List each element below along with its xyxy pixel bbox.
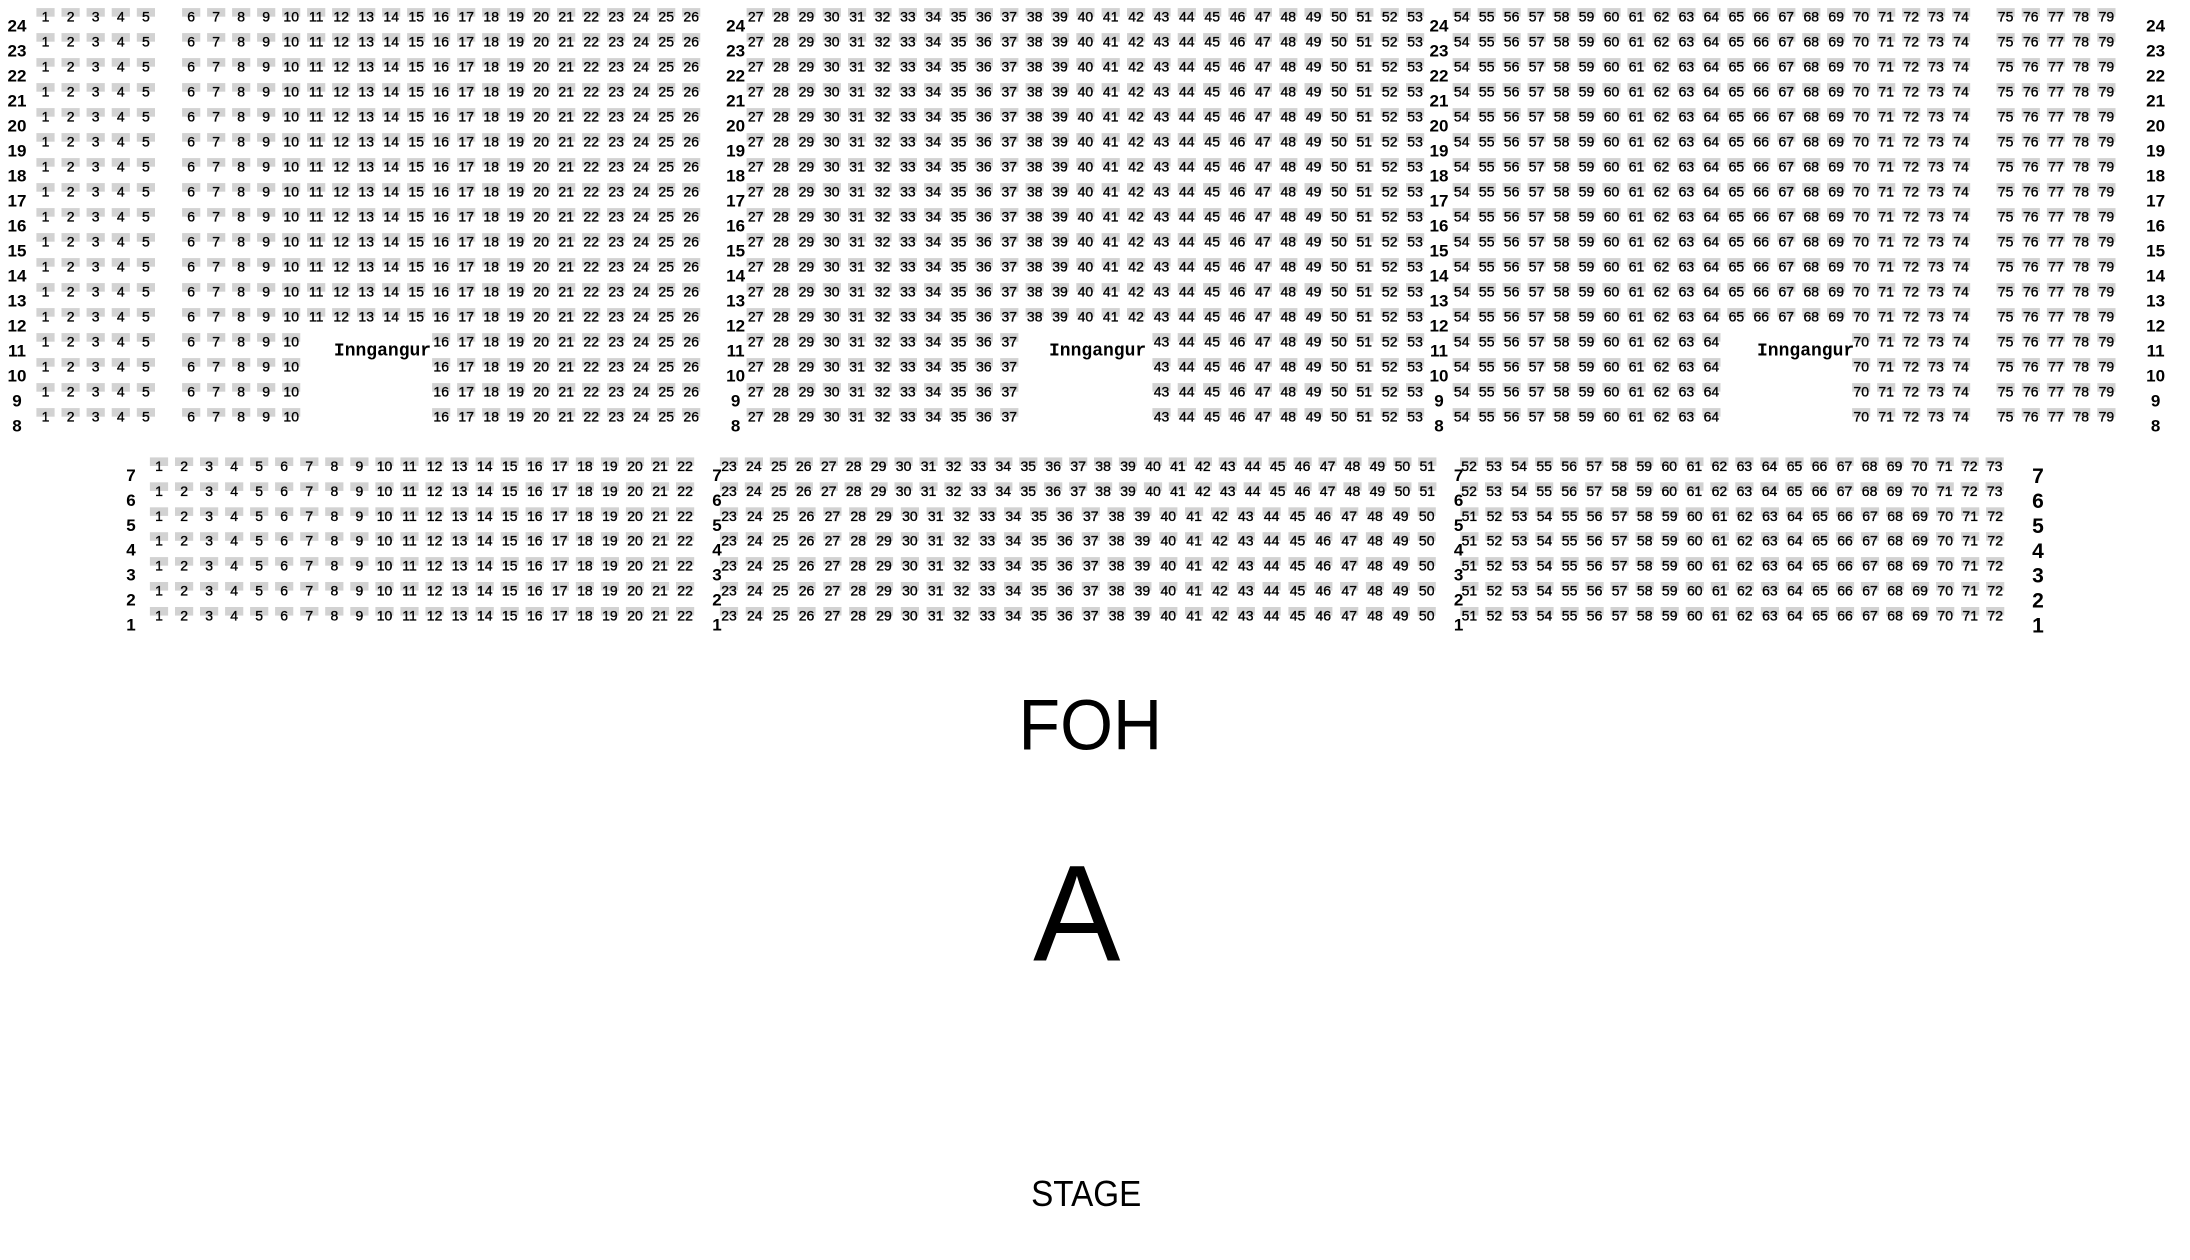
- svg-text:61: 61: [1629, 259, 1645, 275]
- svg-text:58: 58: [1554, 334, 1570, 350]
- svg-text:9: 9: [262, 9, 270, 25]
- svg-text:52: 52: [1382, 9, 1398, 25]
- svg-text:17: 17: [2146, 192, 2165, 211]
- svg-text:40: 40: [1078, 259, 1094, 275]
- svg-text:37: 37: [1002, 9, 1018, 25]
- svg-text:5: 5: [142, 234, 150, 250]
- svg-text:76: 76: [2023, 9, 2039, 25]
- svg-text:79: 79: [2099, 59, 2115, 75]
- svg-text:35: 35: [951, 84, 967, 100]
- svg-text:59: 59: [1662, 533, 1678, 549]
- svg-text:16: 16: [433, 84, 449, 100]
- svg-text:9: 9: [356, 583, 364, 599]
- svg-text:67: 67: [1862, 558, 1878, 574]
- svg-text:3: 3: [92, 234, 100, 250]
- svg-text:13: 13: [452, 583, 468, 599]
- svg-text:1: 1: [42, 259, 50, 275]
- svg-text:39: 39: [1052, 159, 1068, 175]
- svg-text:16: 16: [433, 334, 449, 350]
- svg-text:15: 15: [408, 59, 424, 75]
- svg-text:45: 45: [1204, 159, 1220, 175]
- svg-text:50: 50: [1331, 334, 1347, 350]
- svg-text:35: 35: [1031, 583, 1047, 599]
- svg-text:19: 19: [508, 309, 524, 325]
- svg-text:64: 64: [1787, 508, 1803, 524]
- svg-text:36: 36: [1045, 458, 1061, 474]
- svg-text:62: 62: [1712, 483, 1728, 499]
- svg-text:73: 73: [1928, 409, 1944, 425]
- svg-text:12: 12: [333, 84, 349, 100]
- svg-text:27: 27: [748, 259, 764, 275]
- svg-text:19: 19: [602, 558, 618, 574]
- svg-text:39: 39: [1135, 608, 1151, 624]
- svg-text:45: 45: [1204, 59, 1220, 75]
- svg-text:2: 2: [67, 159, 75, 175]
- svg-text:71: 71: [1878, 59, 1894, 75]
- svg-text:71: 71: [1937, 458, 1953, 474]
- svg-text:47: 47: [1255, 234, 1271, 250]
- svg-text:22: 22: [583, 284, 599, 300]
- svg-text:59: 59: [1579, 9, 1595, 25]
- svg-text:73: 73: [1928, 184, 1944, 200]
- svg-text:55: 55: [1479, 359, 1495, 375]
- svg-text:31: 31: [921, 483, 937, 499]
- svg-text:20: 20: [533, 409, 549, 425]
- svg-text:75: 75: [1998, 309, 2014, 325]
- svg-text:30: 30: [896, 458, 912, 474]
- svg-text:65: 65: [1812, 533, 1828, 549]
- svg-text:33: 33: [900, 284, 916, 300]
- svg-text:67: 67: [1779, 84, 1795, 100]
- svg-text:64: 64: [1704, 359, 1720, 375]
- svg-text:25: 25: [658, 134, 674, 150]
- svg-text:44: 44: [1179, 109, 1195, 125]
- svg-text:19: 19: [602, 608, 618, 624]
- svg-text:64: 64: [1704, 109, 1720, 125]
- svg-text:17: 17: [458, 309, 474, 325]
- svg-text:34: 34: [925, 159, 941, 175]
- svg-text:25: 25: [658, 309, 674, 325]
- svg-text:73: 73: [1928, 159, 1944, 175]
- svg-text:24: 24: [633, 234, 649, 250]
- svg-text:47: 47: [1255, 409, 1271, 425]
- svg-text:77: 77: [2048, 359, 2064, 375]
- svg-text:26: 26: [683, 9, 699, 25]
- svg-text:24: 24: [747, 608, 763, 624]
- svg-text:55: 55: [1479, 134, 1495, 150]
- svg-text:18: 18: [483, 9, 499, 25]
- svg-text:18: 18: [483, 359, 499, 375]
- svg-text:48: 48: [1281, 359, 1297, 375]
- svg-text:47: 47: [1255, 259, 1271, 275]
- svg-text:6: 6: [187, 309, 195, 325]
- svg-text:24: 24: [633, 334, 649, 350]
- svg-text:13: 13: [358, 134, 374, 150]
- svg-text:19: 19: [602, 508, 618, 524]
- svg-text:72: 72: [1903, 34, 1919, 50]
- svg-text:54: 54: [1454, 159, 1470, 175]
- svg-text:18: 18: [483, 309, 499, 325]
- svg-text:64: 64: [1704, 334, 1720, 350]
- svg-text:46: 46: [1230, 259, 1246, 275]
- svg-text:48: 48: [1367, 533, 1383, 549]
- svg-text:8: 8: [237, 84, 245, 100]
- svg-text:42: 42: [1128, 34, 1144, 50]
- svg-text:39: 39: [1052, 59, 1068, 75]
- svg-text:68: 68: [1804, 309, 1820, 325]
- svg-text:35: 35: [951, 34, 967, 50]
- svg-text:13: 13: [358, 209, 374, 225]
- svg-text:65: 65: [1787, 483, 1803, 499]
- svg-text:17: 17: [458, 259, 474, 275]
- svg-text:56: 56: [1504, 284, 1520, 300]
- svg-text:18: 18: [1430, 167, 1449, 186]
- svg-text:27: 27: [825, 608, 841, 624]
- svg-text:71: 71: [1962, 533, 1978, 549]
- svg-text:23: 23: [608, 284, 624, 300]
- svg-text:39: 39: [1120, 483, 1136, 499]
- svg-text:59: 59: [1579, 234, 1595, 250]
- svg-text:31: 31: [849, 384, 865, 400]
- svg-text:79: 79: [2099, 284, 2115, 300]
- svg-text:68: 68: [1862, 483, 1878, 499]
- svg-text:7: 7: [212, 284, 220, 300]
- svg-text:48: 48: [1367, 583, 1383, 599]
- svg-text:72: 72: [1987, 558, 2003, 574]
- svg-text:45: 45: [1204, 134, 1220, 150]
- svg-text:2: 2: [2032, 590, 2044, 613]
- svg-text:25: 25: [658, 159, 674, 175]
- svg-text:1: 1: [42, 9, 50, 25]
- svg-text:6: 6: [2032, 490, 2044, 513]
- svg-text:70: 70: [1853, 234, 1869, 250]
- svg-text:36: 36: [976, 184, 992, 200]
- svg-text:52: 52: [1461, 483, 1477, 499]
- svg-text:69: 69: [1828, 184, 1844, 200]
- svg-text:66: 66: [1837, 608, 1853, 624]
- svg-text:25: 25: [773, 558, 789, 574]
- svg-text:30: 30: [902, 583, 918, 599]
- svg-text:20: 20: [627, 583, 643, 599]
- svg-text:59: 59: [1579, 209, 1595, 225]
- svg-text:74: 74: [1953, 309, 1969, 325]
- svg-text:14: 14: [2146, 267, 2165, 286]
- svg-text:30: 30: [824, 259, 840, 275]
- svg-text:52: 52: [1382, 234, 1398, 250]
- svg-text:51: 51: [1420, 458, 1436, 474]
- svg-text:1: 1: [42, 334, 50, 350]
- svg-text:19: 19: [508, 59, 524, 75]
- svg-text:16: 16: [527, 533, 543, 549]
- svg-text:55: 55: [1562, 508, 1578, 524]
- svg-text:58: 58: [1554, 409, 1570, 425]
- svg-text:50: 50: [1419, 558, 1435, 574]
- svg-text:2: 2: [67, 34, 75, 50]
- svg-text:26: 26: [683, 284, 699, 300]
- svg-text:34: 34: [996, 458, 1012, 474]
- svg-text:45: 45: [1204, 234, 1220, 250]
- svg-text:56: 56: [1504, 134, 1520, 150]
- svg-text:1: 1: [42, 284, 50, 300]
- svg-text:75: 75: [1998, 59, 2014, 75]
- svg-text:12: 12: [333, 259, 349, 275]
- svg-text:11: 11: [309, 284, 324, 300]
- svg-text:56: 56: [1587, 508, 1603, 524]
- svg-text:16: 16: [527, 608, 543, 624]
- svg-text:9: 9: [1434, 392, 1443, 411]
- svg-text:17: 17: [1430, 192, 1449, 211]
- svg-text:31: 31: [849, 109, 865, 125]
- svg-text:52: 52: [1382, 184, 1398, 200]
- svg-text:18: 18: [577, 458, 593, 474]
- svg-text:25: 25: [658, 209, 674, 225]
- svg-text:29: 29: [799, 259, 815, 275]
- svg-text:62: 62: [1654, 409, 1670, 425]
- svg-text:34: 34: [1005, 583, 1021, 599]
- svg-text:13: 13: [358, 9, 374, 25]
- svg-text:28: 28: [850, 608, 866, 624]
- svg-text:1: 1: [42, 234, 50, 250]
- svg-text:4: 4: [230, 458, 238, 474]
- svg-text:21: 21: [558, 59, 574, 75]
- svg-text:35: 35: [1031, 608, 1047, 624]
- svg-text:16: 16: [433, 234, 449, 250]
- svg-text:29: 29: [876, 533, 892, 549]
- svg-text:47: 47: [1341, 533, 1357, 549]
- svg-text:15: 15: [2146, 242, 2165, 261]
- svg-text:35: 35: [1021, 458, 1037, 474]
- svg-text:69: 69: [1828, 284, 1844, 300]
- svg-text:71: 71: [1878, 159, 1894, 175]
- svg-text:50: 50: [1419, 583, 1435, 599]
- svg-text:15: 15: [502, 608, 518, 624]
- svg-text:39: 39: [1052, 109, 1068, 125]
- svg-text:51: 51: [1357, 134, 1373, 150]
- svg-text:67: 67: [1862, 508, 1878, 524]
- svg-text:62: 62: [1654, 59, 1670, 75]
- svg-text:51: 51: [1462, 608, 1478, 624]
- svg-text:44: 44: [1179, 234, 1195, 250]
- svg-text:64: 64: [1704, 409, 1720, 425]
- svg-text:29: 29: [799, 184, 815, 200]
- svg-text:53: 53: [1407, 334, 1423, 350]
- svg-text:57: 57: [1529, 259, 1545, 275]
- svg-text:26: 26: [683, 409, 699, 425]
- svg-text:18: 18: [577, 533, 593, 549]
- svg-text:12: 12: [1430, 317, 1449, 336]
- svg-text:25: 25: [773, 608, 789, 624]
- svg-text:58: 58: [1554, 9, 1570, 25]
- svg-text:53: 53: [1407, 34, 1423, 50]
- svg-text:11: 11: [309, 184, 324, 200]
- svg-text:66: 66: [1754, 59, 1770, 75]
- svg-text:70: 70: [1937, 558, 1953, 574]
- svg-text:78: 78: [2073, 209, 2089, 225]
- svg-text:57: 57: [1612, 508, 1628, 524]
- svg-text:11: 11: [309, 134, 324, 150]
- svg-text:40: 40: [1161, 583, 1177, 599]
- svg-text:79: 79: [2099, 259, 2115, 275]
- svg-text:3: 3: [92, 34, 100, 50]
- svg-text:49: 49: [1306, 209, 1322, 225]
- svg-text:65: 65: [1729, 134, 1745, 150]
- svg-text:1: 1: [155, 608, 163, 624]
- svg-text:70: 70: [1853, 384, 1869, 400]
- svg-text:42: 42: [1128, 134, 1144, 150]
- svg-text:38: 38: [1027, 34, 1043, 50]
- svg-text:16: 16: [433, 59, 449, 75]
- svg-text:50: 50: [1395, 458, 1411, 474]
- svg-text:47: 47: [1255, 134, 1271, 150]
- svg-text:30: 30: [824, 109, 840, 125]
- svg-text:41: 41: [1103, 309, 1119, 325]
- svg-text:9: 9: [262, 159, 270, 175]
- svg-text:31: 31: [928, 608, 944, 624]
- svg-text:52: 52: [1461, 458, 1477, 474]
- svg-text:55: 55: [1479, 234, 1495, 250]
- svg-text:52: 52: [1382, 334, 1398, 350]
- svg-text:13: 13: [2146, 292, 2165, 311]
- svg-text:12: 12: [333, 284, 349, 300]
- svg-text:28: 28: [846, 458, 862, 474]
- svg-text:39: 39: [1052, 209, 1068, 225]
- svg-text:1: 1: [155, 558, 163, 574]
- svg-text:6: 6: [187, 9, 195, 25]
- svg-text:78: 78: [2073, 309, 2089, 325]
- svg-text:45: 45: [1204, 209, 1220, 225]
- svg-text:60: 60: [1604, 159, 1620, 175]
- svg-text:53: 53: [1486, 458, 1502, 474]
- svg-text:7: 7: [2032, 465, 2044, 488]
- svg-text:4: 4: [117, 309, 125, 325]
- svg-text:13: 13: [358, 59, 374, 75]
- svg-text:19: 19: [1430, 142, 1449, 161]
- svg-text:73: 73: [1987, 458, 2003, 474]
- svg-text:64: 64: [1787, 583, 1803, 599]
- svg-text:69: 69: [1912, 608, 1928, 624]
- svg-text:33: 33: [900, 34, 916, 50]
- svg-text:30: 30: [902, 508, 918, 524]
- svg-text:57: 57: [1612, 583, 1628, 599]
- svg-text:12: 12: [333, 34, 349, 50]
- svg-text:33: 33: [900, 384, 916, 400]
- svg-text:22: 22: [2146, 67, 2165, 86]
- svg-text:20: 20: [533, 184, 549, 200]
- svg-text:71: 71: [1878, 409, 1894, 425]
- svg-text:70: 70: [1853, 34, 1869, 50]
- svg-text:46: 46: [1316, 583, 1332, 599]
- svg-text:14: 14: [477, 533, 493, 549]
- svg-text:46: 46: [1230, 309, 1246, 325]
- svg-text:77: 77: [2048, 334, 2064, 350]
- svg-text:6: 6: [187, 409, 195, 425]
- svg-text:66: 66: [1837, 583, 1853, 599]
- svg-text:78: 78: [2073, 84, 2089, 100]
- svg-text:4: 4: [126, 541, 136, 560]
- svg-text:49: 49: [1306, 234, 1322, 250]
- svg-text:70: 70: [1853, 409, 1869, 425]
- svg-text:7: 7: [126, 466, 135, 485]
- svg-text:53: 53: [1407, 309, 1423, 325]
- svg-text:32: 32: [875, 134, 891, 150]
- svg-text:73: 73: [1928, 309, 1944, 325]
- svg-text:12: 12: [333, 309, 349, 325]
- svg-text:14: 14: [477, 558, 493, 574]
- svg-text:70: 70: [1853, 259, 1869, 275]
- svg-text:21: 21: [652, 583, 668, 599]
- svg-text:35: 35: [951, 234, 967, 250]
- svg-text:62: 62: [1654, 84, 1670, 100]
- svg-text:4: 4: [230, 533, 238, 549]
- svg-text:57: 57: [1612, 533, 1628, 549]
- svg-text:79: 79: [2099, 9, 2115, 25]
- svg-text:58: 58: [1554, 259, 1570, 275]
- svg-text:45: 45: [1204, 9, 1220, 25]
- svg-text:31: 31: [928, 508, 944, 524]
- svg-text:61: 61: [1629, 234, 1645, 250]
- svg-text:10: 10: [283, 59, 299, 75]
- svg-text:44: 44: [1179, 359, 1195, 375]
- svg-text:5: 5: [142, 209, 150, 225]
- svg-text:32: 32: [875, 309, 891, 325]
- svg-text:23: 23: [608, 84, 624, 100]
- svg-text:40: 40: [1078, 234, 1094, 250]
- svg-text:1: 1: [42, 134, 50, 150]
- svg-text:49: 49: [1306, 309, 1322, 325]
- svg-text:35: 35: [951, 9, 967, 25]
- svg-text:30: 30: [896, 483, 912, 499]
- svg-text:49: 49: [1393, 533, 1409, 549]
- svg-text:34: 34: [925, 359, 941, 375]
- svg-text:5: 5: [255, 458, 263, 474]
- svg-text:23: 23: [608, 234, 624, 250]
- svg-text:60: 60: [1662, 483, 1678, 499]
- svg-text:34: 34: [925, 184, 941, 200]
- svg-text:77: 77: [2048, 9, 2064, 25]
- svg-text:75: 75: [1998, 259, 2014, 275]
- svg-text:19: 19: [508, 409, 524, 425]
- svg-text:43: 43: [1238, 558, 1254, 574]
- svg-text:54: 54: [1454, 109, 1470, 125]
- svg-text:52: 52: [1382, 359, 1398, 375]
- svg-text:68: 68: [1804, 9, 1820, 25]
- svg-text:20: 20: [533, 84, 549, 100]
- svg-text:15: 15: [502, 583, 518, 599]
- svg-text:68: 68: [1804, 159, 1820, 175]
- svg-text:32: 32: [954, 608, 970, 624]
- svg-text:13: 13: [358, 34, 374, 50]
- svg-text:55: 55: [1562, 608, 1578, 624]
- svg-text:56: 56: [1561, 483, 1577, 499]
- svg-text:36: 36: [976, 134, 992, 150]
- svg-text:60: 60: [1604, 209, 1620, 225]
- svg-text:30: 30: [824, 309, 840, 325]
- svg-text:53: 53: [1407, 184, 1423, 200]
- svg-text:21: 21: [558, 109, 574, 125]
- svg-text:47: 47: [1320, 483, 1336, 499]
- svg-text:14: 14: [383, 109, 399, 125]
- svg-text:27: 27: [748, 234, 764, 250]
- svg-text:53: 53: [1407, 159, 1423, 175]
- svg-text:36: 36: [976, 34, 992, 50]
- svg-text:11: 11: [402, 558, 417, 574]
- svg-text:77: 77: [2048, 134, 2064, 150]
- svg-text:24: 24: [633, 384, 649, 400]
- svg-text:76: 76: [2023, 359, 2039, 375]
- svg-text:20: 20: [533, 309, 549, 325]
- svg-text:58: 58: [1637, 608, 1653, 624]
- svg-text:65: 65: [1729, 184, 1745, 200]
